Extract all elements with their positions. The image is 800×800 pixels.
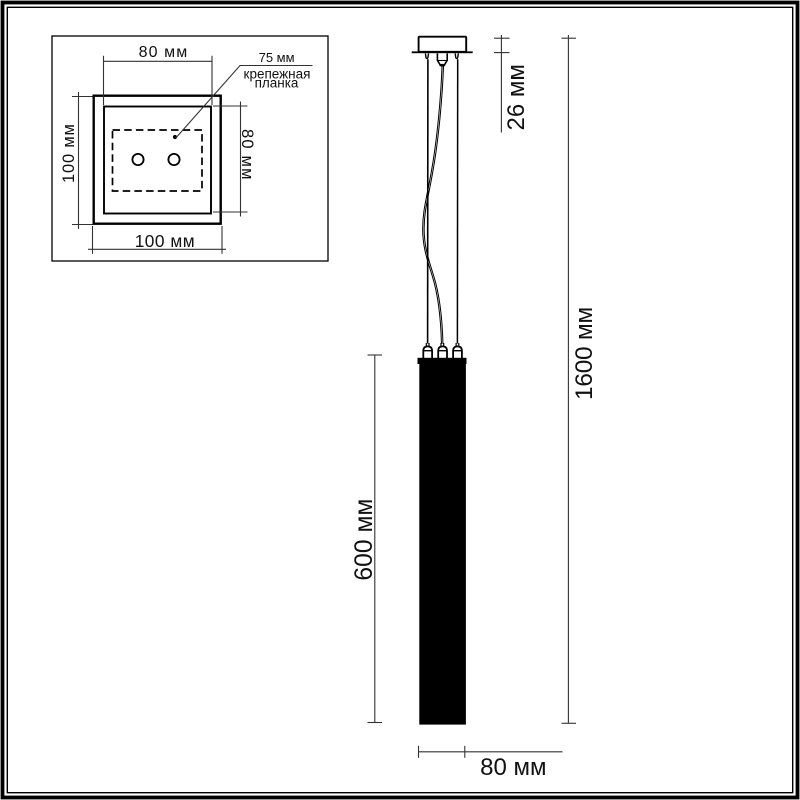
svg-text:1600 мм: 1600 мм bbox=[571, 307, 598, 400]
svg-text:80 мм: 80 мм bbox=[139, 44, 189, 61]
svg-text:планка: планка bbox=[255, 76, 299, 91]
svg-text:100 мм: 100 мм bbox=[135, 231, 195, 251]
svg-text:80 мм: 80 мм bbox=[238, 129, 256, 181]
svg-text:100 мм: 100 мм bbox=[60, 123, 78, 183]
svg-text:75 мм: 75 мм bbox=[259, 50, 295, 65]
svg-text:26 мм: 26 мм bbox=[503, 64, 530, 130]
svg-text:600 мм: 600 мм bbox=[351, 499, 378, 581]
svg-text:80 мм: 80 мм bbox=[480, 754, 546, 781]
